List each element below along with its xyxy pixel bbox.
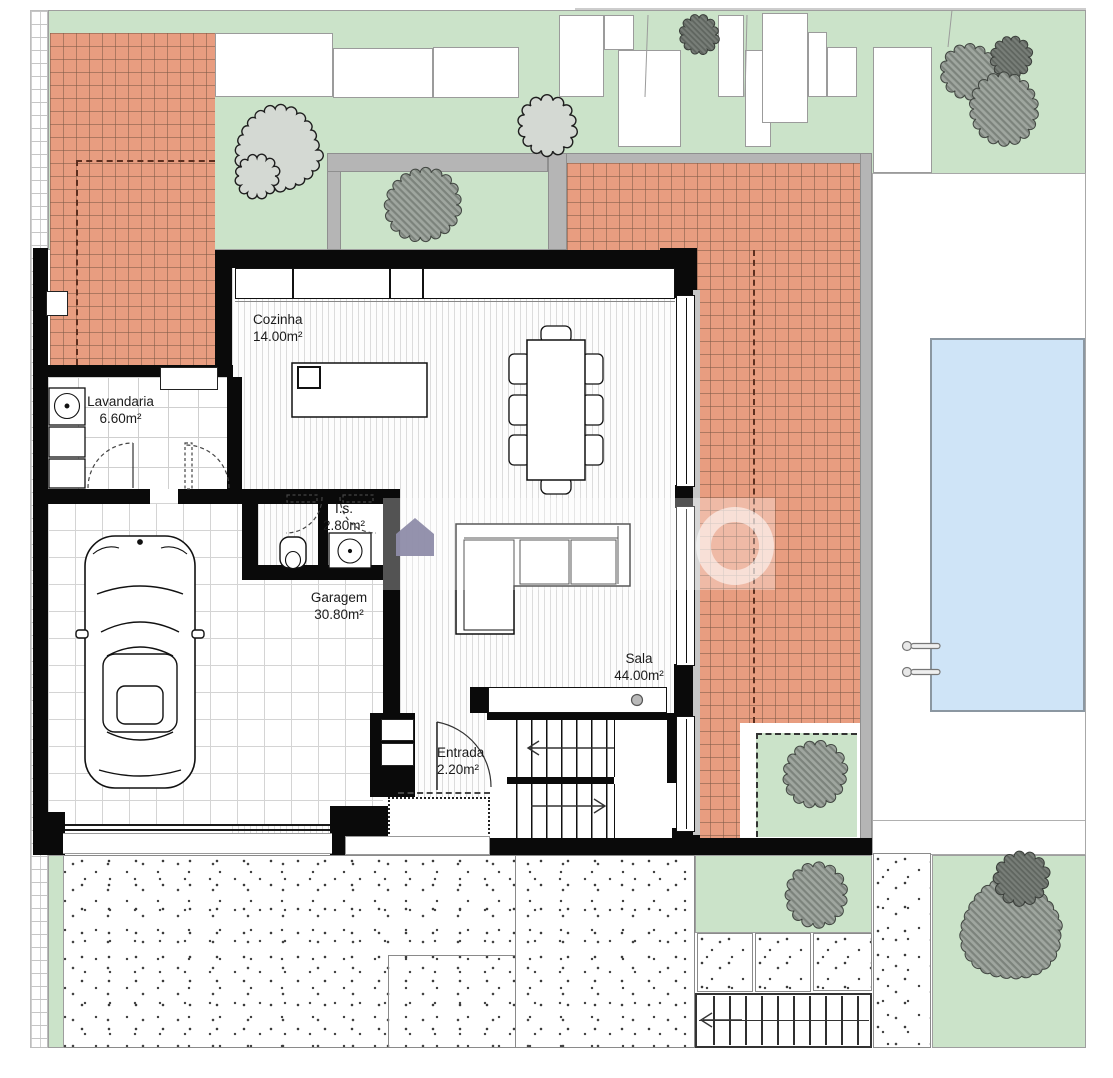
- overhang-dashed-h: [76, 160, 215, 164]
- hall-closet-shelf: [381, 719, 414, 741]
- wc-floor-hatch: [258, 495, 318, 567]
- room-area: 6.60m²: [78, 410, 163, 427]
- hall-closet-shelf: [381, 743, 414, 766]
- wall-segment: [33, 248, 48, 855]
- floor-plan-canvas: Cozinha 14.00m² Lavandaria 6.60m² I.s. 2…: [0, 0, 1113, 1078]
- stair-flight-lower: [516, 784, 615, 838]
- room-name: Cozinha: [253, 311, 343, 328]
- room-name: Lavandaria: [78, 393, 163, 410]
- neighbor-parcel: [718, 15, 744, 97]
- utility-meter-box: [46, 291, 68, 316]
- paver-3: [813, 933, 872, 991]
- patio-green-inset: [756, 733, 857, 837]
- room-name: Garagem: [300, 589, 378, 606]
- wall-segment: [33, 812, 65, 855]
- neighbor-parcel: [618, 50, 681, 147]
- room-label-is: I.s. 2.80m²: [320, 500, 368, 534]
- room-area: 14.00m²: [253, 328, 343, 345]
- sideboard: [488, 687, 667, 713]
- roof-overhang-dashed-line: [753, 250, 757, 723]
- room-label-garagem: Garagem 30.80m²: [300, 589, 378, 623]
- room-name: I.s.: [320, 500, 368, 517]
- wall-segment: [507, 777, 614, 784]
- neighbor-parcel: [559, 15, 604, 97]
- neighbor-parcel: [333, 48, 433, 98]
- kitchen-counter: [235, 268, 675, 299]
- wall-segment: [242, 565, 390, 580]
- wall-segment: [33, 489, 150, 504]
- counter-edge-line: [235, 301, 675, 302]
- entrance-porch: [388, 797, 490, 838]
- patio-tiles-north: [567, 163, 860, 251]
- wall-segment: [470, 687, 490, 713]
- grass-back-left: [695, 855, 872, 933]
- neighbor-parcel: [762, 13, 808, 123]
- room-label-entrada: Entrada 2.20m²: [437, 744, 507, 778]
- room-label-sala: Sala 44.00m²: [600, 650, 678, 684]
- entrance-step: [345, 836, 490, 855]
- room-area: 30.80m²: [300, 606, 378, 623]
- deck-edge-line: [873, 820, 1085, 821]
- driveway-step-line-v: [388, 955, 389, 1048]
- window-glass-line: [686, 298, 687, 484]
- paver-2: [755, 933, 811, 992]
- wall-segment: [487, 713, 677, 720]
- counter-divider: [422, 269, 424, 298]
- neighbor-parcel: [604, 15, 634, 50]
- swimming-pool: [930, 338, 1085, 712]
- garage-door-apron: [63, 833, 332, 854]
- room-area: 2.80m²: [320, 517, 368, 534]
- overhang-dashed-v: [76, 160, 80, 365]
- patio-frame-left: [548, 153, 567, 250]
- counter-divider: [292, 269, 294, 298]
- window-glass-line: [686, 719, 687, 829]
- wall-segment: [215, 250, 232, 377]
- driveway-step-line-h: [388, 955, 515, 956]
- grass-back-right: [932, 855, 1086, 1048]
- garage-door-line: [65, 824, 330, 826]
- grass-strip-left: [48, 855, 64, 1048]
- laundry-patio-door: [160, 367, 218, 390]
- room-area: 2.20m²: [437, 761, 507, 778]
- paver-column: [873, 853, 931, 1048]
- neighbor-parcel: [873, 47, 932, 173]
- neighbor-parcel: [827, 47, 857, 97]
- room-label-cozinha: Cozinha 14.00m²: [253, 311, 343, 345]
- room-name: Entrada: [437, 744, 507, 761]
- driveway-gravel: [50, 855, 695, 1048]
- patio-tiles-northwest: [50, 33, 215, 365]
- neighbor-parcel: [215, 33, 333, 97]
- entrance-threshold: [398, 792, 490, 794]
- room-label-lavandaria: Lavandaria 6.60m²: [78, 393, 163, 427]
- neighbor-parcel: [433, 47, 519, 98]
- wall-segment: [215, 250, 697, 268]
- room-name: Sala: [600, 650, 678, 667]
- exterior-stair-walkway: [695, 993, 872, 1048]
- garage-door-line: [65, 829, 330, 831]
- walkway-mid-line: [699, 1020, 869, 1021]
- stair-flight-upper: [516, 720, 615, 777]
- room-area: 44.00m²: [600, 667, 678, 684]
- counter-divider: [389, 269, 391, 298]
- window-east-1: [676, 295, 695, 487]
- paver-1: [697, 933, 753, 992]
- driveway-joint-line: [515, 855, 516, 1048]
- window-east-3: [676, 716, 695, 832]
- wall-segment: [227, 377, 242, 504]
- watermark-ring: [696, 507, 774, 585]
- neighbor-parcel: [808, 32, 827, 97]
- path-gray-horizontal: [327, 153, 548, 172]
- patio-frame-right: [860, 153, 872, 855]
